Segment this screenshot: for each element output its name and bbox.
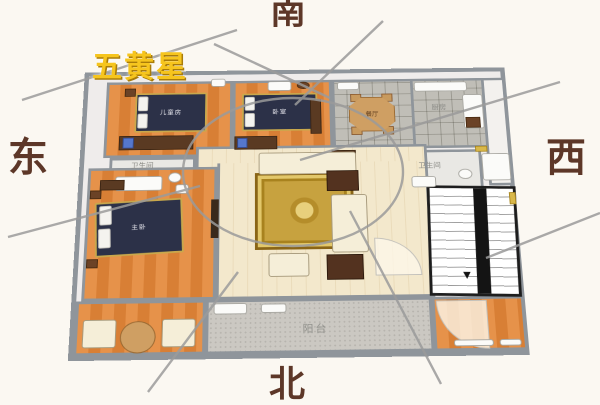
door-threshold: [475, 146, 488, 152]
compass-west-label: 西: [546, 138, 586, 178]
threshold: [454, 339, 494, 346]
pillow: [245, 113, 255, 127]
five-yellow-star-label: 五黄星: [92, 42, 188, 86]
master-bedroom-label: 主卧: [131, 223, 147, 233]
dining-room-label: 餐厅: [365, 110, 378, 118]
door-cabinet: [211, 79, 226, 87]
nightstand: [125, 89, 136, 97]
pillow: [98, 228, 111, 248]
stairs-down-arrow-icon: ▼: [463, 270, 471, 280]
shower-stall: [481, 153, 511, 180]
floor-mat: [237, 138, 247, 148]
pillow: [99, 206, 112, 226]
tv-panel: [211, 199, 219, 238]
pillow: [137, 114, 148, 129]
balcony-label: 阳台: [302, 321, 328, 336]
stove: [465, 117, 481, 128]
planter-box: [214, 303, 248, 315]
sideboard: [337, 82, 359, 90]
floor-mat: [122, 138, 134, 149]
lounge-chair: [161, 319, 195, 348]
compass-east-label: 东: [8, 138, 48, 178]
door-threshold: [509, 192, 517, 204]
compass-south-label: 南: [270, 0, 306, 29]
staircase: ▼: [427, 185, 522, 296]
toilet: [175, 184, 188, 194]
bathroom-left-label: 卫生间: [131, 161, 154, 171]
pillow: [245, 97, 255, 111]
stair-rail: [473, 188, 491, 293]
planter-box: [261, 303, 287, 313]
sink: [458, 169, 473, 179]
feng-shui-floorplan-diagram: ▼ 儿童房 卧室 餐厅 厨房: [0, 0, 600, 400]
rug-medallion: [282, 193, 326, 228]
floorplan: ▼ 儿童房 卧室 餐厅 厨房: [68, 67, 530, 361]
kitchen-counter: [414, 81, 468, 91]
dresser: [100, 180, 125, 191]
sofa-right: [331, 194, 369, 253]
children-bedroom-label: 儿童房: [160, 108, 182, 116]
second-bedroom-label: 卧室: [272, 108, 287, 116]
dresser: [310, 99, 322, 134]
bathroom-right-label: 卫生间: [418, 161, 441, 171]
pillow: [138, 97, 149, 112]
armchair: [268, 253, 309, 277]
nightstand: [86, 259, 98, 268]
threshold: [500, 339, 522, 346]
side-table: [327, 254, 365, 280]
side-table: [326, 170, 359, 191]
compass-north-label: 北: [269, 366, 305, 402]
nightstand: [90, 190, 102, 199]
lounge-chair: [82, 320, 117, 349]
crib: [268, 81, 292, 91]
kitchen-label: 厨房: [431, 103, 446, 112]
bathtub: [411, 176, 436, 187]
